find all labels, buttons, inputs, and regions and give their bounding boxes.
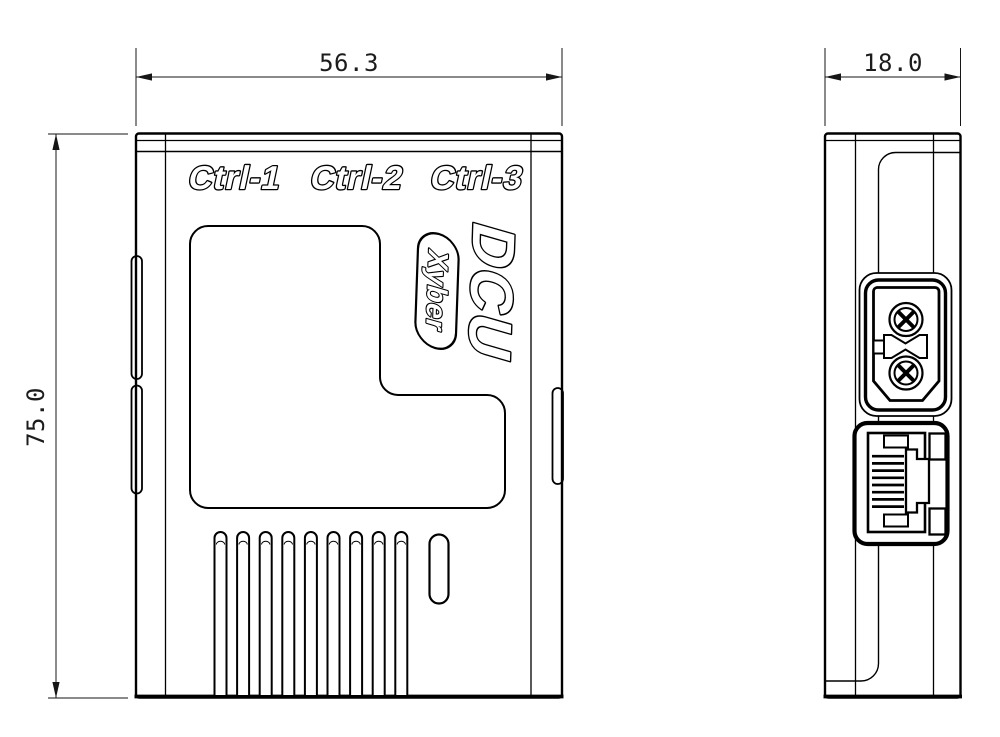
side-width-dimension: 18.0	[825, 48, 961, 126]
front-view: Ctrl-1 Ctrl-2 Ctrl-3 DCU Xyber	[132, 134, 564, 698]
power-pin-lower	[890, 357, 923, 390]
power-pin-upper	[890, 303, 923, 336]
side-width-value: 18.0	[863, 49, 923, 77]
ethernet-plug-profile	[906, 450, 929, 513]
vent-slot	[373, 532, 385, 695]
xt30-power-connector	[860, 273, 952, 416]
model-logo: DCU	[456, 215, 527, 370]
ethernet-mount-tab-bottom	[930, 509, 946, 535]
arrowhead-left	[136, 73, 152, 80]
port-labels: Ctrl-1 Ctrl-2 Ctrl-3	[185, 160, 527, 197]
vent-slot	[260, 532, 272, 695]
ethernet-bottom-notch	[884, 515, 908, 527]
model-logo-text: DCU	[456, 215, 527, 370]
ethernet-top-notch	[884, 436, 908, 448]
brand-badge-text: Xyber	[419, 246, 453, 335]
oblong-slot	[430, 535, 449, 604]
brand-badge: Xyber	[415, 228, 460, 354]
front-width-value: 56.3	[319, 49, 379, 77]
arrowhead-bottom	[52, 682, 59, 698]
front-height-dimension: 75.0	[22, 134, 128, 698]
vent-slot	[305, 532, 317, 695]
arrowhead-top	[52, 134, 59, 150]
front-width-dimension: 56.3	[136, 48, 562, 126]
vent-slot	[328, 532, 340, 695]
vent-slot	[395, 532, 407, 695]
arrowhead-right	[945, 73, 961, 80]
ctrl-1-label: Ctrl-1	[185, 160, 285, 197]
ethernet-mount-tab-top	[930, 434, 946, 460]
ctrl-3-label: Ctrl-3	[427, 160, 527, 197]
front-height-value: 75.0	[22, 387, 50, 447]
vent-slot	[350, 532, 362, 695]
rj45-ethernet-port	[855, 423, 948, 544]
vent-slots	[215, 532, 408, 695]
technical-drawing-page: Ctrl-1 Ctrl-2 Ctrl-3 DCU Xyber	[0, 0, 1000, 737]
vent-slot	[282, 532, 294, 695]
arrowhead-right	[546, 73, 562, 80]
ctrl-2-label: Ctrl-2	[307, 160, 407, 197]
vent-slot	[215, 532, 227, 695]
drawing-canvas: Ctrl-1 Ctrl-2 Ctrl-3 DCU Xyber	[0, 0, 1000, 737]
side-view	[824, 134, 963, 698]
arrowhead-left	[825, 73, 841, 80]
vent-slot	[237, 532, 249, 695]
